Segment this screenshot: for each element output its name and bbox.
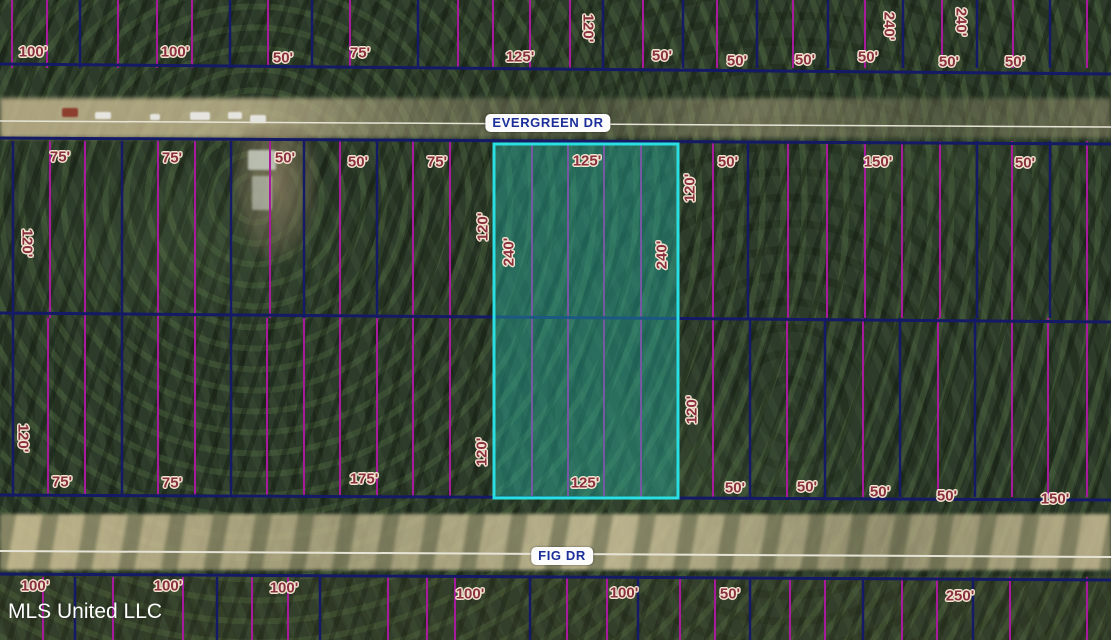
dimension-label: 120' — [581, 14, 596, 43]
dimension-label: 50' — [939, 55, 959, 70]
dimension-label: 100' — [270, 581, 299, 596]
dimension-label: 50' — [858, 50, 878, 65]
aerial-plat-map: 100'100'50'75'125'120'50'50'50'50'240'50… — [0, 0, 1111, 640]
dimension-label: 75' — [427, 155, 447, 170]
dimension-label: 250' — [946, 589, 975, 604]
dimension-label: 100' — [161, 45, 190, 60]
dimension-label: 120' — [685, 396, 700, 425]
dimension-label: 120' — [683, 174, 698, 203]
dimension-label: 75' — [350, 46, 370, 61]
road-label-evergreen-dr: EVERGREEN DR — [485, 114, 610, 132]
dimension-label: 75' — [50, 150, 70, 165]
dimension-label: 125' — [573, 154, 602, 169]
dimension-label: 100' — [19, 45, 48, 60]
dimension-label: 120' — [475, 438, 490, 467]
dimension-label: 50' — [797, 480, 817, 495]
dimension-label: 120' — [476, 213, 491, 242]
dimension-label: 120' — [16, 424, 31, 453]
dimension-label: 75' — [162, 151, 182, 166]
parcel-lines-overlay — [0, 0, 1111, 640]
dimension-label: 50' — [1005, 55, 1025, 70]
watermark-mls-united-llc: MLS United LLC — [8, 600, 162, 624]
dimension-label: 50' — [273, 51, 293, 66]
dimension-label: 175' — [350, 472, 379, 487]
dimension-label: 50' — [720, 587, 740, 602]
dimension-label: 50' — [870, 485, 890, 500]
road-label-fig-dr: FIG DR — [531, 547, 593, 565]
dimension-label: 240' — [882, 12, 897, 41]
dimension-label: 240' — [954, 8, 969, 37]
dimension-label: 100' — [21, 579, 50, 594]
dimension-label: 50' — [937, 489, 957, 504]
dimension-label: 50' — [1015, 156, 1035, 171]
dimension-label: 240' — [502, 238, 517, 267]
dimension-label: 50' — [652, 49, 672, 64]
dimension-label: 125' — [571, 476, 600, 491]
dimension-label: 100' — [456, 587, 485, 602]
dimension-label: 100' — [610, 586, 639, 601]
dimension-label: 150' — [1041, 492, 1070, 507]
dimension-label: 150' — [864, 155, 893, 170]
dimension-label: 50' — [727, 54, 747, 69]
dimension-label: 75' — [52, 475, 72, 490]
dimension-label: 50' — [275, 151, 295, 166]
dimension-label: 100' — [154, 579, 183, 594]
highlighted-lot — [494, 144, 678, 498]
dimension-label: 50' — [725, 481, 745, 496]
dimension-label: 50' — [348, 155, 368, 170]
dimension-label: 75' — [162, 476, 182, 491]
dimension-label: 120' — [20, 229, 35, 258]
dimension-label: 50' — [795, 53, 815, 68]
dimension-label: 125' — [506, 50, 535, 65]
dimension-label: 50' — [718, 155, 738, 170]
dimension-label: 240' — [655, 241, 670, 270]
